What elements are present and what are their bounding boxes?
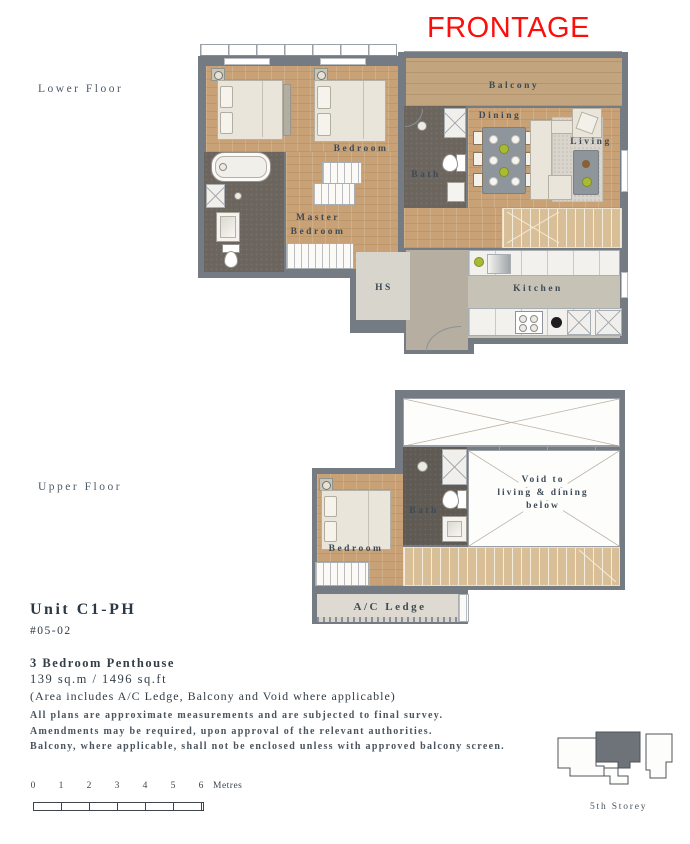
burner-icon [519, 324, 527, 332]
scale-tick: 6 [199, 781, 204, 791]
upper-floor-plan: Void to living & dining below Bath Bedro… [312, 390, 628, 626]
unit-area-note: (Area includes A/C Ledge, Balcony and Vo… [30, 689, 396, 704]
roof-void [403, 398, 620, 447]
hs-label: HS [375, 284, 393, 294]
plate [511, 135, 520, 144]
sofa-chaise [548, 175, 572, 200]
pillow [317, 113, 331, 136]
kitchen-sink [551, 317, 562, 328]
armchair-cushion [575, 111, 598, 134]
void-label-line1: Void to [519, 475, 568, 487]
disclaimer-line: Balcony, where applicable, shall not be … [30, 739, 505, 755]
blanket-fold [363, 81, 364, 139]
stairs-winder-lines [503, 209, 621, 247]
kitchen-counter-top [468, 250, 620, 276]
bedroom-label: Bedroom [334, 145, 389, 155]
ac-ledge-grille [458, 594, 469, 622]
toilet [442, 490, 459, 509]
lower-floor-plan: Balcony Dining Living Bedroom Bath Maste… [198, 42, 628, 354]
shower [444, 108, 466, 138]
dining-label: Dining [479, 112, 521, 122]
shower [442, 449, 467, 485]
sink-basin [417, 121, 427, 131]
pillow [220, 86, 233, 108]
scale-bar: 0 1 2 3 4 5 6 Metres [31, 781, 291, 813]
upper-bedroom-label: Bedroom [329, 545, 384, 555]
site-plan: 5th Storey [552, 726, 677, 816]
plant-icon [582, 177, 592, 187]
kitchen-unit [595, 310, 622, 335]
window [621, 272, 628, 298]
plate [511, 156, 520, 165]
faucet-icon [219, 163, 227, 171]
plate [489, 177, 498, 186]
upper-floor-caption: Upper Floor [38, 481, 122, 493]
window [224, 58, 270, 65]
frontage-label: FRONTAGE [427, 12, 590, 45]
fridge [487, 254, 511, 274]
lamp-icon [317, 71, 326, 80]
disclaimer-line: Amendments may be required, upon approva… [30, 724, 505, 740]
armchair [572, 108, 602, 138]
toilet [442, 154, 458, 172]
scale-tick: 5 [171, 781, 176, 791]
master-bedroom-label-line2: Bedroom [291, 228, 346, 238]
plate [511, 177, 520, 186]
living-label: Living [570, 138, 611, 148]
dining-chair [473, 173, 483, 187]
scale-tick: 2 [87, 781, 92, 791]
lamp-icon [214, 71, 223, 80]
plant-icon [474, 257, 484, 267]
scale-tick: 1 [59, 781, 64, 791]
burner-icon [519, 315, 527, 323]
shower [216, 212, 240, 242]
shower-tray [447, 521, 462, 537]
unit-type: 3 Bedroom Penthouse [30, 656, 175, 671]
toilet [224, 251, 238, 268]
window [621, 150, 628, 192]
dining-table [482, 127, 526, 194]
pillow [324, 521, 337, 542]
shower-tray [220, 216, 236, 238]
wardrobe [315, 562, 369, 586]
dish-icon [499, 167, 509, 177]
bedroom2-bed [314, 80, 386, 142]
kitchen-unit [567, 310, 591, 335]
pillow [220, 112, 233, 134]
wardrobe [286, 243, 354, 269]
disclaimer-line: All plans are approximate measurements a… [30, 708, 505, 724]
kitchen-counter-bottom [468, 308, 622, 336]
scale-tick: 4 [143, 781, 148, 791]
kitchen-label: Kitchen [513, 285, 563, 295]
bath-cabinet [442, 516, 467, 542]
stairs [502, 208, 622, 248]
wardrobe [313, 183, 355, 205]
window [320, 58, 366, 65]
pillow [317, 86, 331, 109]
scale-tick: 0 [31, 781, 36, 791]
stairs-landing-line [404, 548, 619, 585]
lamp-icon [322, 481, 331, 490]
void-label-line2: living & dining [494, 488, 591, 500]
storey-label: 5th Storey [590, 802, 647, 812]
corridor-floor [404, 208, 504, 248]
bath-label: Bath [411, 171, 441, 181]
scale-unit: Metres [213, 781, 242, 791]
scale-tick: 3 [115, 781, 120, 791]
disclaimer-block: All plans are approximate measurements a… [30, 708, 505, 755]
vanity-sink [206, 184, 225, 208]
bath-cabinet [447, 182, 465, 202]
void-cross [404, 399, 619, 446]
plate [489, 156, 498, 165]
bathtub [211, 152, 271, 182]
ac-ledge-label: A/C Ledge [354, 602, 427, 613]
stove [515, 311, 543, 334]
sink-basin [417, 461, 428, 472]
coffee-table [573, 150, 599, 195]
railing [200, 44, 397, 56]
decor-icon [582, 160, 590, 168]
scale-ruler [33, 802, 204, 811]
wardrobe [322, 162, 362, 184]
burner-icon [530, 324, 538, 332]
dish-icon [499, 144, 509, 154]
blanket-fold [368, 491, 369, 547]
master-bed [217, 80, 283, 140]
master-bedroom-label-line1: Master [296, 214, 340, 224]
sink-basin [234, 192, 242, 200]
pillow [324, 496, 337, 517]
blanket-fold [262, 81, 263, 137]
balcony-label: Balcony [489, 82, 539, 92]
unit-name: Unit C1-PH [30, 601, 136, 619]
plate [489, 135, 498, 144]
site-plan-map [552, 726, 677, 798]
void-label-line3: below [523, 501, 563, 513]
dining-chair [473, 152, 483, 166]
unit-number: #05-02 [30, 625, 72, 637]
lower-floor-caption: Lower Floor [38, 83, 123, 95]
bed-bench [283, 84, 291, 136]
unit-area: 139 sq.m / 1496 sq.ft [30, 672, 167, 687]
upper-stairs [403, 547, 620, 586]
dining-chair [473, 131, 483, 145]
burner-icon [530, 315, 538, 323]
ac-ledge-vent [317, 617, 463, 622]
floorplan-page: FRONTAGE Lower Floor Upper Floor [0, 0, 690, 844]
upper-bath-label: Bath [409, 507, 439, 517]
upper-bed [321, 490, 391, 550]
